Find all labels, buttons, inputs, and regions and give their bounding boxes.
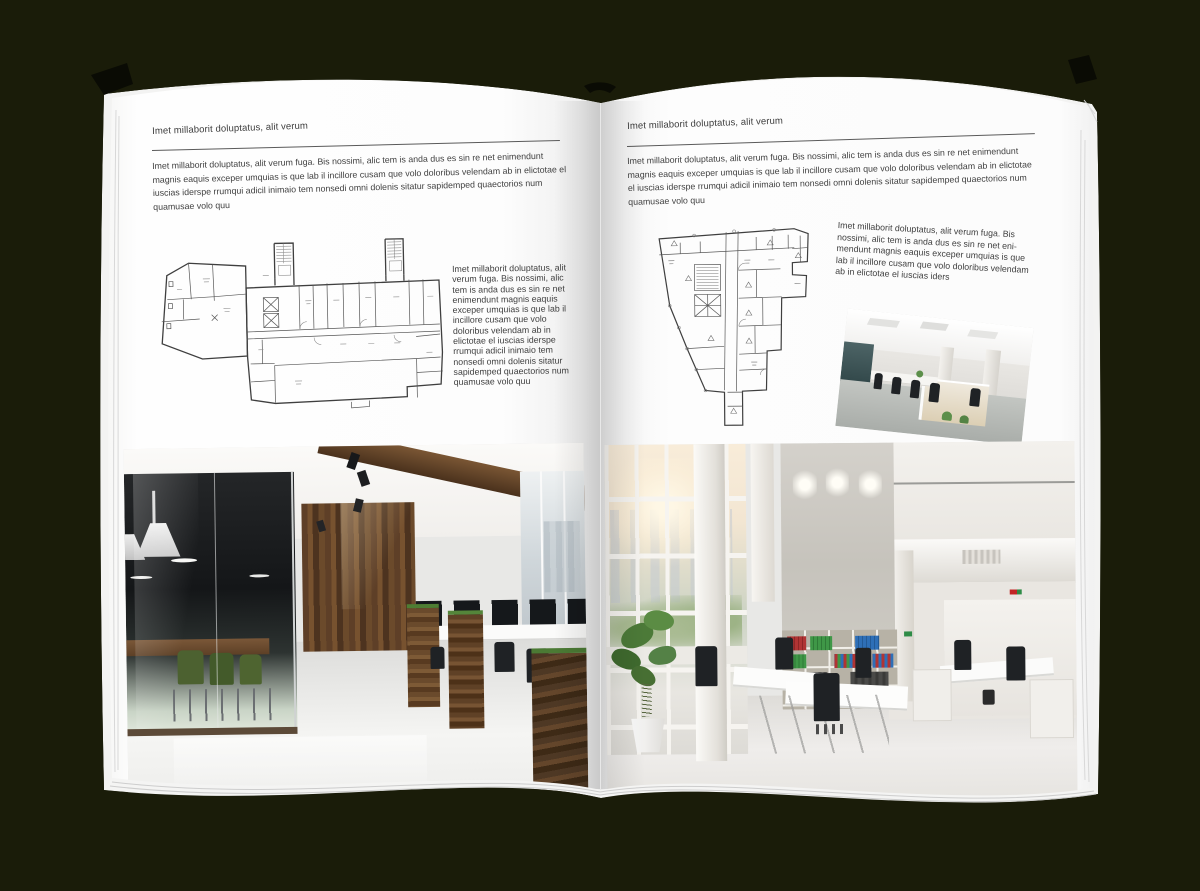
city-view — [543, 521, 581, 592]
glass-reflection — [133, 473, 201, 732]
column — [694, 444, 727, 761]
office-chair — [873, 373, 883, 390]
office-chair — [494, 642, 514, 672]
window-dark — [840, 341, 874, 384]
binders-blue — [872, 653, 893, 668]
plant-small — [941, 411, 952, 421]
green-chair — [209, 653, 233, 685]
planter-box — [448, 611, 484, 729]
floor-plan-left — [152, 232, 448, 418]
upper-wall — [877, 441, 1075, 551]
spotlight-glow — [793, 468, 817, 501]
green-chair — [239, 654, 261, 684]
vent-grille — [963, 550, 1001, 565]
office-chair — [928, 382, 940, 402]
right-intro-paragraph: Imet millaborit doluptatus, alit verum f… — [627, 144, 1038, 209]
left-header-rule — [152, 140, 560, 151]
office-chair — [775, 638, 793, 670]
cover-spine-sliver — [584, 82, 616, 93]
plant-stems — [642, 682, 652, 716]
corner-step — [1084, 100, 1097, 122]
office-chair — [1006, 647, 1025, 681]
office-chair — [910, 379, 921, 398]
office-chair — [969, 388, 981, 407]
office-chair — [430, 647, 444, 669]
wood-wall-light — [341, 502, 416, 609]
office-photo-right — [604, 441, 1077, 805]
spotlight-glow — [858, 468, 882, 501]
binders-green — [811, 636, 832, 651]
left-page-header: Imet millaborit doluptatus, alit verum — [152, 121, 308, 137]
floor-plan-right — [644, 219, 828, 431]
column — [750, 444, 775, 603]
office-chair — [954, 640, 971, 670]
left-side-text: Imet millaborit doluptatus, alit verum f… — [452, 262, 582, 387]
office-photo-small — [835, 309, 1033, 446]
fore-edge-line — [1080, 130, 1085, 780]
right-side-text: Imet millaborit doluptatus, alit verum f… — [835, 220, 1036, 288]
plant-small — [960, 415, 970, 424]
cover-corner-right — [1068, 55, 1097, 84]
fore-edge-line — [117, 116, 119, 770]
spotlight-glow — [826, 466, 850, 499]
fire-sign — [1010, 589, 1022, 594]
desk-cabinet — [912, 669, 952, 722]
cover-corner-left — [91, 63, 133, 95]
office-chair — [855, 648, 871, 678]
right-page-header: Imet millaborit doluptatus, alit verum — [627, 116, 783, 132]
office-photo-left — [124, 443, 589, 803]
waste-bin — [983, 690, 995, 705]
chair-base — [816, 724, 844, 734]
floor-reflection — [174, 735, 428, 802]
office-chair — [695, 646, 717, 686]
desk-cabinet — [1029, 679, 1074, 739]
book-mockup-scene: Imet millaborit doluptatus, alit verum I… — [0, 0, 1200, 891]
fore-edge-line — [114, 110, 116, 772]
office-chair — [813, 673, 839, 721]
fore-edge-line — [1084, 140, 1089, 782]
left-intro-paragraph: Imet millaborit doluptatus, alit verum f… — [152, 149, 567, 214]
exit-sign — [905, 631, 913, 636]
planter-box-large — [531, 648, 588, 802]
